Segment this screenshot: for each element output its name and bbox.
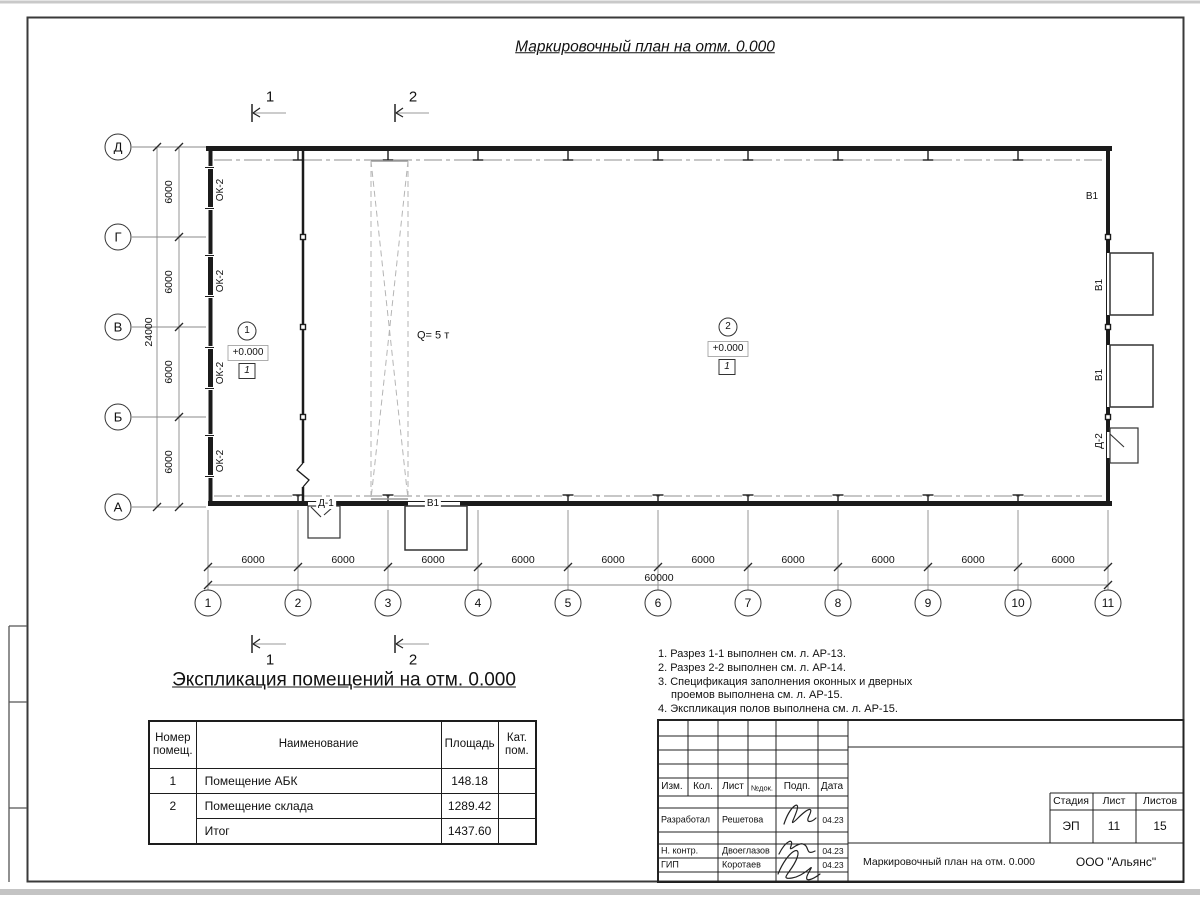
dim-label: 6000 (601, 555, 624, 566)
axis-number: 10 (1011, 597, 1024, 609)
window-label: ОК-2 (216, 179, 226, 202)
door-label: Д-2 (1095, 433, 1105, 449)
col-header-num: Номер помещ. (149, 721, 196, 769)
dim-label: 6000 (1051, 555, 1074, 566)
cell-room-area: 1289.42 (441, 794, 498, 819)
stamp-header-podp: Подп. (784, 782, 811, 792)
cell-room-num: 1 (149, 769, 196, 794)
dim-label: 6000 (511, 555, 534, 566)
elevation-mark: +0.000 (233, 348, 264, 358)
axis-number: 8 (835, 597, 842, 609)
dim-label: 6000 (331, 555, 354, 566)
dim-label: 6000 (691, 555, 714, 566)
cell-total-area: 1437.60 (441, 819, 498, 845)
dim-label: 6000 (961, 555, 984, 566)
room-markers (228, 318, 748, 379)
stamp-stage-value: ЭП (1062, 820, 1079, 832)
crane-zone (371, 161, 408, 499)
signatures (778, 805, 820, 880)
axis-letter: В (114, 321, 123, 334)
cell-room-cat (498, 769, 536, 794)
section-mark-1-bottom: 1 (266, 653, 274, 668)
overhang-lines (214, 160, 1104, 496)
crane-capacity-label: Q= 5 т (417, 331, 449, 342)
section-mark-2-bottom: 2 (409, 653, 417, 668)
cell-room-num (149, 819, 196, 845)
dim-total-label: 24000 (144, 317, 155, 346)
stamp-name: Двоеглазов (722, 847, 770, 856)
cell-room-area: 148.18 (441, 769, 498, 794)
floor-type-mark: 1 (724, 362, 730, 372)
gate-label: В1 (425, 499, 441, 509)
cell-room-num: 2 (149, 794, 196, 819)
room-number: 2 (725, 322, 731, 332)
section-mark-1-top: 1 (266, 90, 274, 105)
stamp-header-ndok: №док. (751, 784, 773, 792)
stamp-doc-title: Маркировочный план на отм. 0.000 (863, 857, 1035, 868)
room-number: 1 (244, 326, 250, 336)
dim-label: 6000 (164, 360, 175, 383)
window-label: ОК-2 (216, 270, 226, 293)
stamp-date: 04.23 (822, 847, 843, 856)
stamp-company: ООО "Альянс" (1076, 856, 1156, 868)
dim-total-label: 60000 (644, 573, 673, 584)
dim-label: 6000 (871, 555, 894, 566)
drawing-sheet: Маркировочный план на отм. 0.000 1 2 1 2… (0, 0, 1200, 900)
stamp-date: 04.23 (822, 816, 843, 825)
stamp-header-data: Дата (821, 782, 843, 792)
cell-total-label: Итог (196, 819, 441, 845)
stamp-stage-header: Стадия (1053, 796, 1089, 807)
dim-label: 6000 (164, 450, 175, 473)
window-label: ОК-2 (216, 450, 226, 473)
exterior-walls (206, 146, 1112, 506)
stamp-role: ГИП (661, 861, 679, 870)
stamp-name: Решетова (722, 816, 763, 825)
col-header-name: Наименование (196, 721, 441, 769)
axis-number: 11 (1102, 597, 1114, 609)
axis-letter: Б (114, 411, 123, 424)
dim-label: 6000 (164, 270, 175, 293)
stamp-header-kol: Кол. (693, 782, 713, 792)
stamp-role: Разработал (661, 816, 710, 825)
axis-number: 5 (565, 597, 572, 609)
dim-label: 6000 (421, 555, 444, 566)
axis-number: 2 (295, 597, 302, 609)
stamp-sheet-value: 11 (1108, 820, 1120, 832)
dimension-lines (132, 147, 1108, 590)
axis-letter: Г (114, 231, 121, 244)
interior-wall (297, 148, 309, 504)
window-symbols (205, 166, 214, 478)
stamp-sheets-value: 15 (1153, 820, 1166, 832)
cell-room-name: Помещение АБК (196, 769, 441, 794)
dim-label: 6000 (781, 555, 804, 566)
note-line: 1. Разрез 1-1 выполнен см. л. АР-13. (658, 649, 912, 660)
axis-number: 7 (745, 597, 752, 609)
axis-number: 4 (475, 597, 482, 609)
sheet-title: Маркировочный план на отм. 0.000 (515, 39, 775, 55)
stamp-sheets-header: Листов (1143, 796, 1177, 807)
room-schedule-table: Номер помещ. Наименование Площадь Кат. п… (148, 720, 537, 845)
col-header-area: Площадь (441, 721, 498, 769)
axis-number: 1 (205, 597, 212, 609)
axis-number: 3 (385, 597, 392, 609)
column-marks (293, 151, 1111, 502)
gate-label: В1 (1086, 192, 1098, 202)
cell-room-cat (498, 819, 536, 845)
stamp-role: Н. контр. (661, 847, 698, 856)
section-marks (252, 104, 429, 653)
elevation-mark: +0.000 (713, 344, 744, 354)
gate-label: В1 (1095, 369, 1105, 381)
dimension-ticks (153, 143, 1112, 589)
note-line: 2. Разрез 2-2 выполнен см. л. АР-14. (658, 663, 912, 674)
stamp-sheet-header: Лист (1103, 796, 1126, 807)
stamp-header-list: Лист (722, 782, 744, 792)
gate-label: В1 (1095, 279, 1105, 291)
door-label: Д-1 (316, 499, 336, 509)
stamp-date: 04.23 (822, 861, 843, 870)
floor-type-mark: 1 (244, 366, 250, 376)
window-label: ОК-2 (216, 362, 226, 385)
col-header-cat: Кат. пом. (498, 721, 536, 769)
stamp-header-izm: Изм. (661, 782, 682, 792)
stamp-name: Коротаев (722, 861, 761, 870)
cell-room-name: Помещение склада (196, 794, 441, 819)
axis-letter: Д (114, 141, 123, 154)
explication-title: Экспликация помещений на отм. 0.000 (172, 671, 516, 690)
binding-strip (9, 626, 27, 882)
notes-list: 1. Разрез 1-1 выполнен см. л. АР-13. 2. … (658, 649, 912, 718)
axis-letter: А (114, 501, 123, 514)
dim-label: 6000 (164, 180, 175, 203)
note-line: 3. Спецификация заполнения оконных и две… (658, 677, 912, 688)
axis-number: 9 (925, 597, 932, 609)
section-mark-2-top: 2 (409, 90, 417, 105)
axis-bubbles (105, 134, 1121, 616)
note-line: проемов выполнена см. л. АР-15. (658, 690, 912, 701)
note-line: 4. Экспликация полов выполнена см. л. АР… (658, 704, 912, 715)
cell-room-cat (498, 794, 536, 819)
axis-number: 6 (655, 597, 662, 609)
dim-label: 6000 (241, 555, 264, 566)
